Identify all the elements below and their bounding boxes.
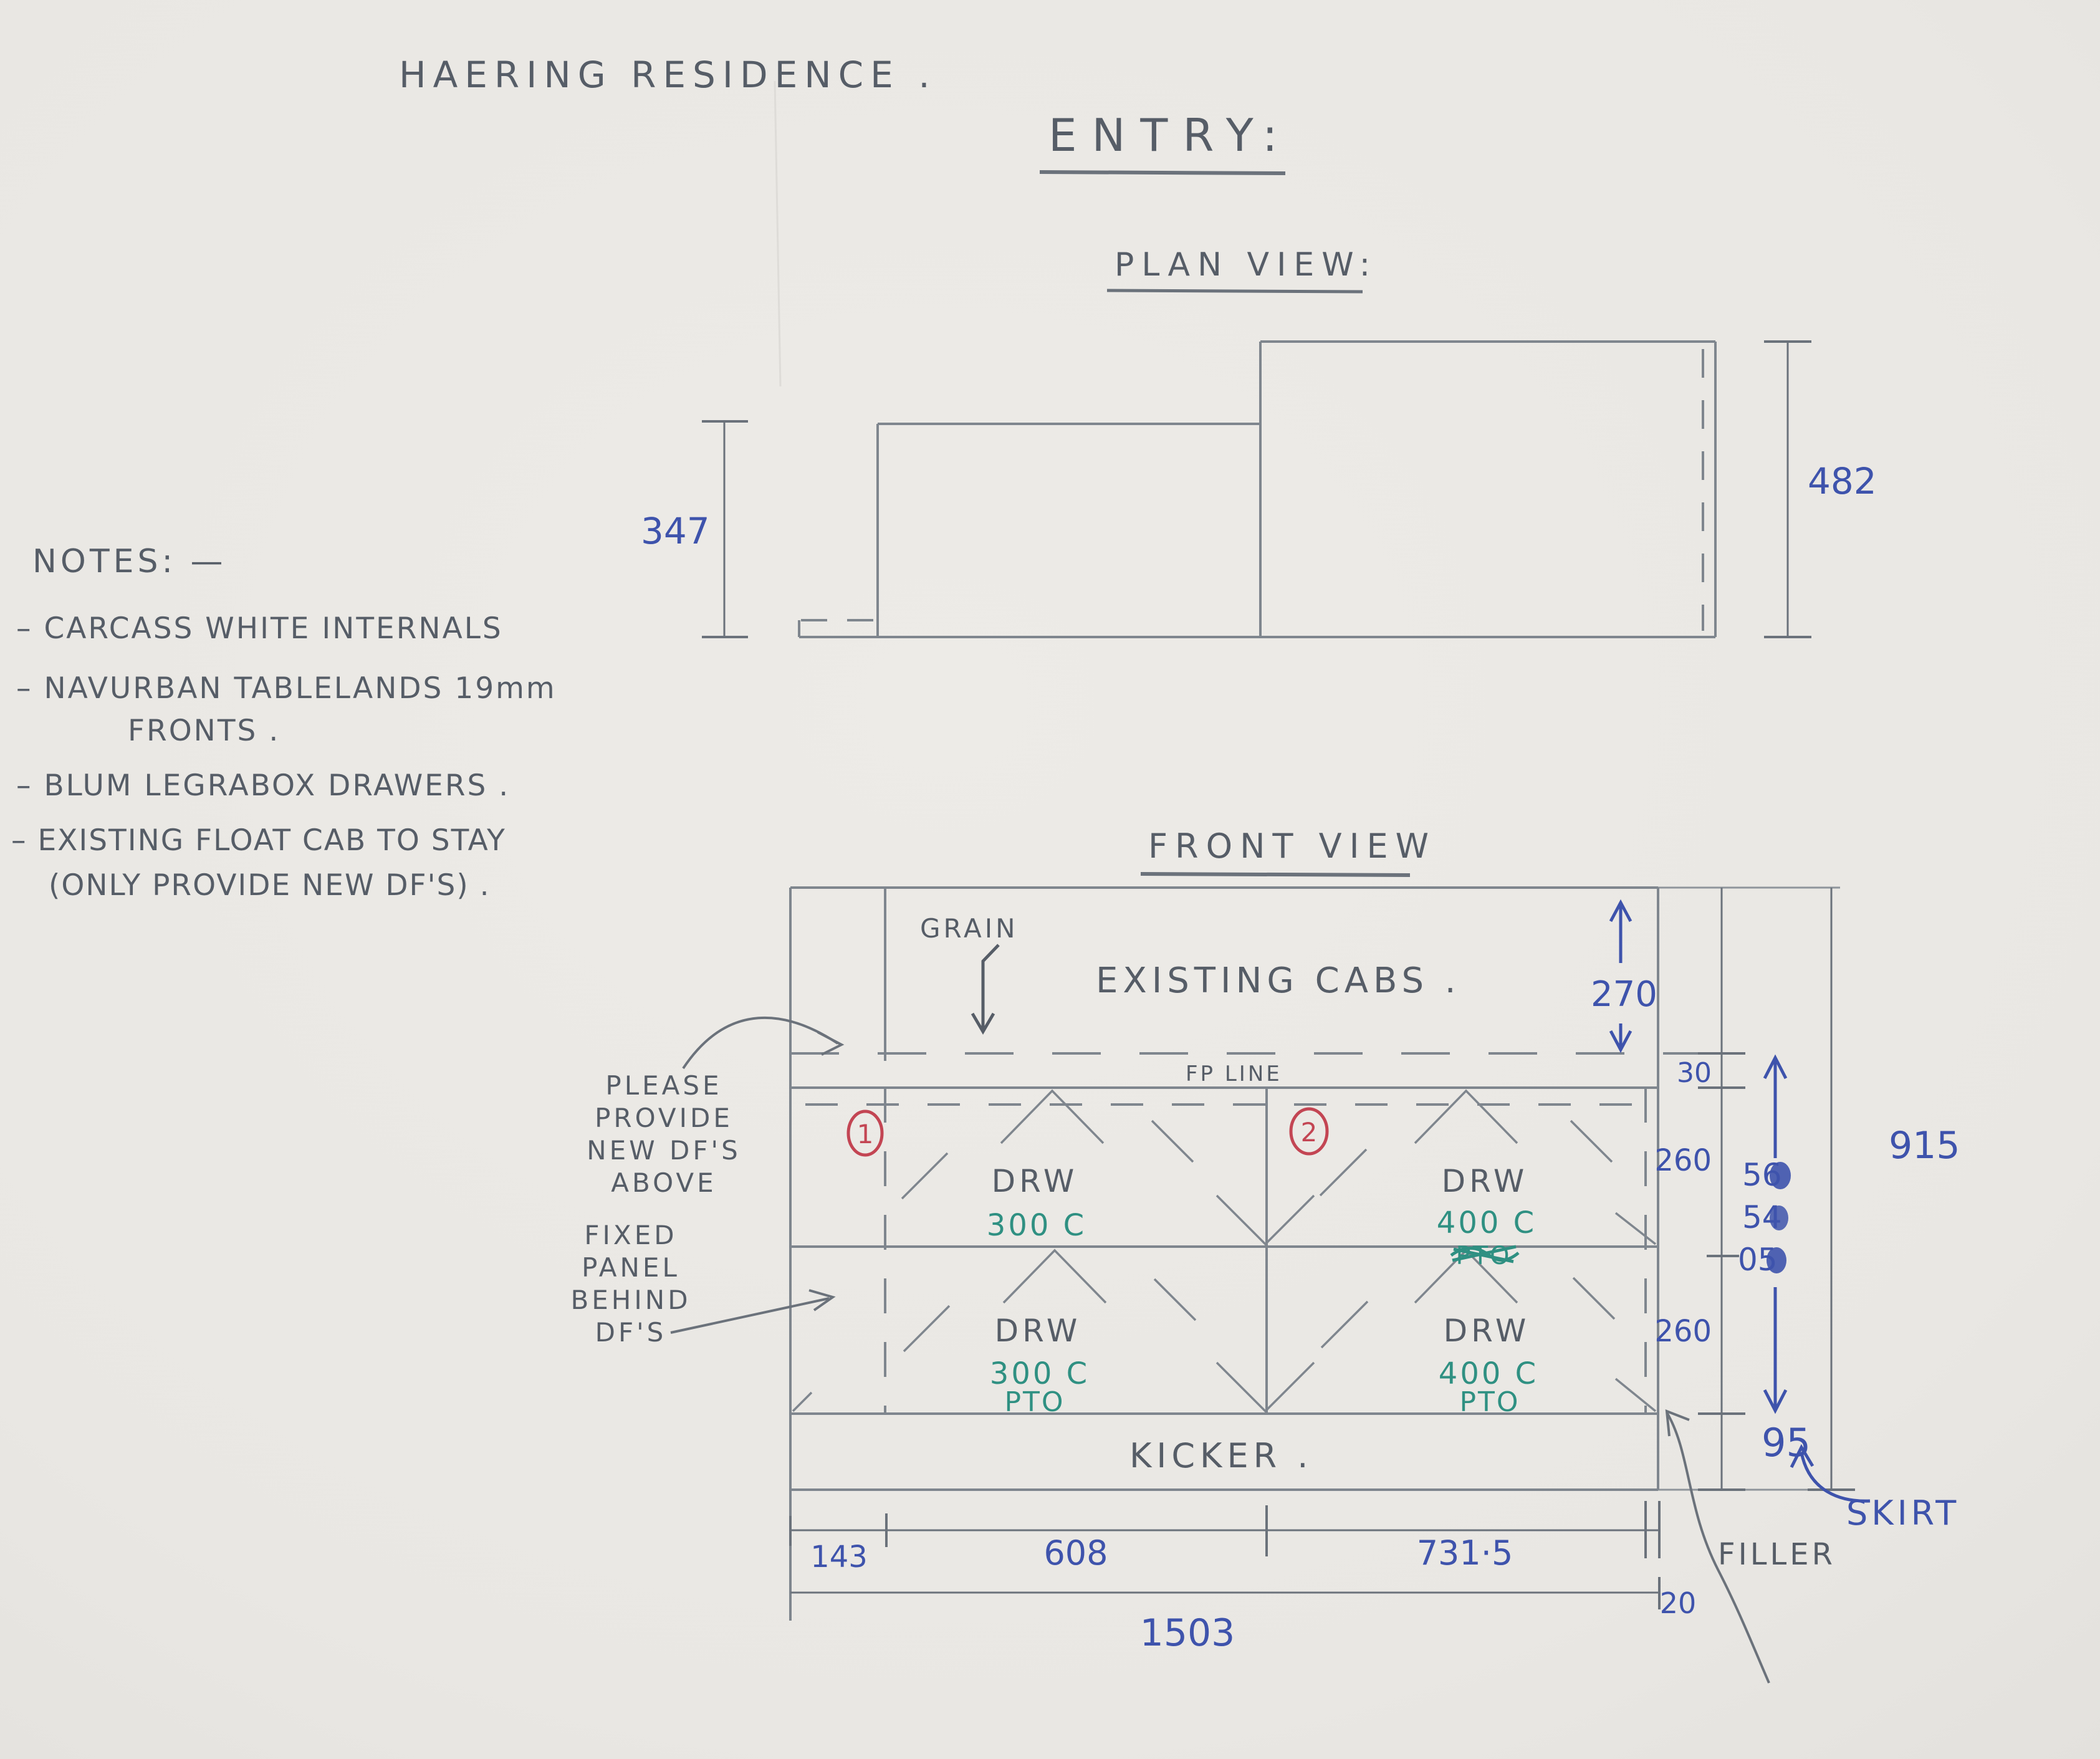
overwritten-dims: 56 54 05 xyxy=(1738,1157,1791,1278)
cab1-bottom-note: PTO xyxy=(1004,1386,1065,1418)
dim-overall-width: 1503 xyxy=(1140,1611,1235,1655)
notes-heading: NOTES: — xyxy=(32,543,227,580)
note-line: – EXISTING FLOAT CAB TO STAY xyxy=(11,823,506,858)
annotation-line: PROVIDE xyxy=(595,1103,733,1133)
cab2-bottom-label: DRW xyxy=(1444,1313,1530,1349)
cab2-top-label: DRW xyxy=(1442,1163,1528,1199)
ink-blot-icon xyxy=(1770,1205,1788,1230)
cab2-bottom-note: PTO xyxy=(1459,1386,1520,1418)
filler-label: FILLER xyxy=(1718,1537,1836,1572)
cab1-bottom-label: DRW xyxy=(995,1313,1081,1349)
dim-filler-left: 143 xyxy=(810,1540,868,1574)
note-line: – CARCASS WHITE INTERNALS xyxy=(16,611,503,646)
dim-front1-width: 608 xyxy=(1043,1533,1108,1573)
dim-fp-gap: 30 xyxy=(1677,1057,1712,1089)
cabinet-1-number: 1 xyxy=(857,1119,874,1149)
cabinet-2-number: 2 xyxy=(1301,1117,1318,1148)
annotation-line: PANEL xyxy=(582,1252,680,1283)
ink-blot-icon xyxy=(1770,1162,1791,1189)
note-line: – NAVURBAN TABLELANDS 19mm xyxy=(16,671,557,706)
annotation-line: DF'S xyxy=(595,1317,667,1348)
dim-drawer-top: 260 xyxy=(1654,1143,1712,1178)
front-view-heading: FRONT VIEW xyxy=(1148,827,1436,866)
skirt-label: SKIRT xyxy=(1846,1493,1960,1533)
grain-label: GRAIN xyxy=(920,913,1019,944)
dim-drawer-bottom: 260 xyxy=(1654,1314,1712,1349)
existing-cabs-label: EXISTING CABS . xyxy=(1096,961,1461,1001)
annotation-line: FIXED xyxy=(584,1220,677,1250)
page-title: HAERING RESIDENCE . xyxy=(399,54,937,96)
annotation-line: ABOVE xyxy=(611,1167,716,1198)
section-heading-underline xyxy=(1040,172,1285,173)
dim-existing-height: 270 xyxy=(1591,974,1657,1015)
annotation-line: PLEASE xyxy=(605,1070,722,1101)
note-line: FRONTS . xyxy=(128,714,280,748)
annotation-line: NEW DF'S xyxy=(587,1135,741,1166)
ink-blot-icon xyxy=(1767,1247,1786,1273)
note-line: (ONLY PROVIDE NEW DF'S) . xyxy=(49,868,491,903)
cab1-top-size: 300 C xyxy=(987,1208,1086,1243)
annotation-line: BEHIND xyxy=(570,1285,691,1315)
cab1-top-label: DRW xyxy=(992,1163,1078,1199)
dim-filler-right: 20 xyxy=(1660,1586,1697,1620)
dim-overall-height: 915 xyxy=(1889,1124,1960,1167)
fp-line-label: FP LINE xyxy=(1186,1062,1282,1086)
note-line: – BLUM LEGRABOX DRAWERS . xyxy=(16,769,510,803)
dim-front2-width: 731·5 xyxy=(1417,1533,1513,1573)
plan-view-underline xyxy=(1107,290,1363,292)
cab2-top-size: 400 C xyxy=(1437,1205,1537,1240)
sketch-page: HAERING RESIDENCE . ENTRY: NOTES: — – CA… xyxy=(0,0,2100,1759)
section-heading: ENTRY: xyxy=(1048,109,1292,161)
front-view-underline xyxy=(1141,874,1410,875)
kicker-label: KICKER . xyxy=(1129,1436,1313,1475)
plan-view-heading: PLAN VIEW: xyxy=(1115,246,1378,284)
plan-dim-left-value: 347 xyxy=(641,510,710,552)
plan-dim-right-value: 482 xyxy=(1808,460,1877,502)
sketch-canvas: HAERING RESIDENCE . ENTRY: NOTES: — – CA… xyxy=(0,0,2100,1759)
